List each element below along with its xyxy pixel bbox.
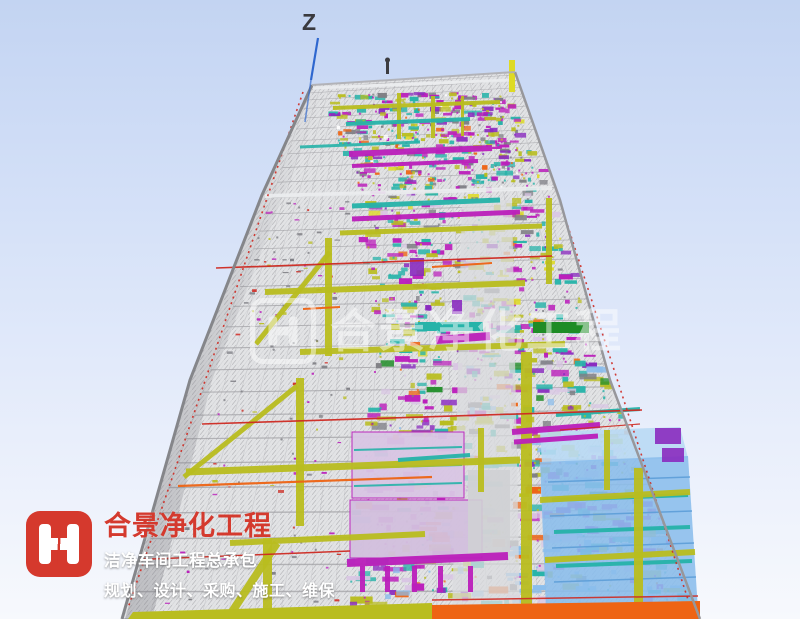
cad-render-view: Z 合景净化工程 [0,0,800,619]
brand-title: 合景净化工程 [104,511,335,542]
brand-tagline: 洁净车间工程总承包 [104,547,335,571]
z-axis-label: Z [302,9,316,35]
brand-services: 规划、设计、采购、施工、维保 [104,577,335,601]
brand-block: 合景净化工程 洁净车间工程总承包 规划、设计、采购、施工、维保 [26,511,335,601]
hejing-logo-icon [26,511,92,577]
